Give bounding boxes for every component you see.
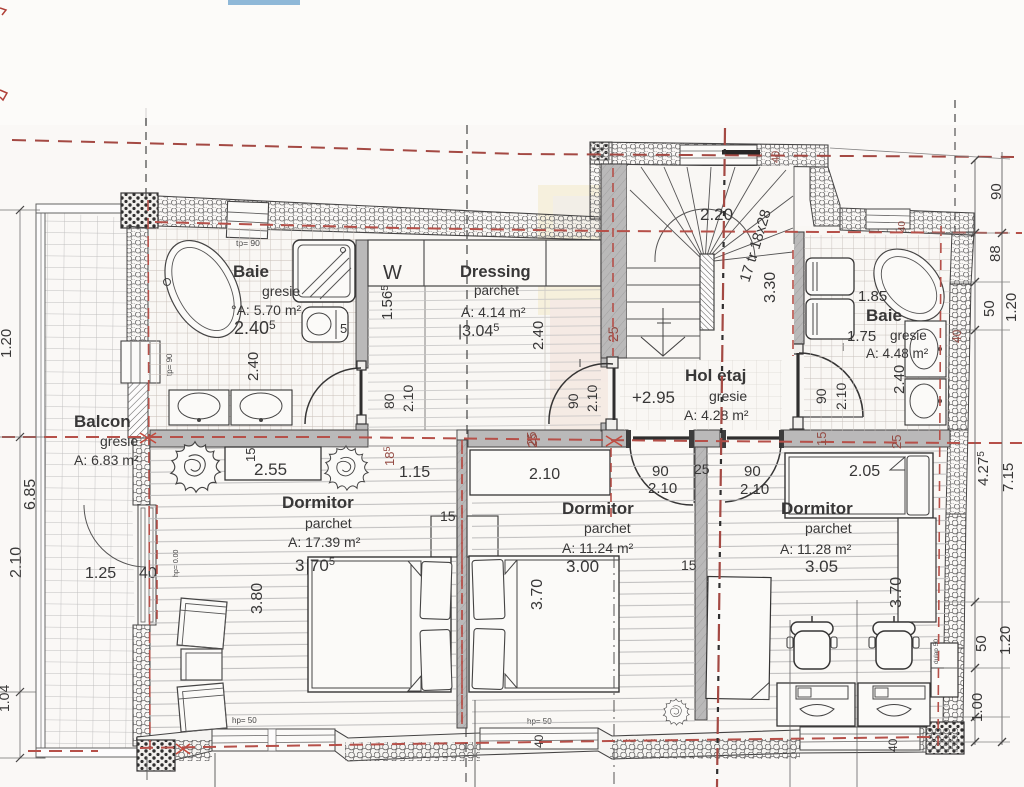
svg-text:A: 11.24 m²: A: 11.24 m² bbox=[562, 540, 634, 556]
svg-text:15: 15 bbox=[440, 508, 456, 524]
svg-text:2.10: 2.10 bbox=[400, 385, 416, 412]
svg-text:25: 25 bbox=[889, 435, 904, 449]
svg-text:°A: 5.70 m²: °A: 5.70 m² bbox=[231, 302, 302, 318]
svg-text:2.10: 2.10 bbox=[529, 466, 560, 483]
svg-text:Balcon: Balcon bbox=[74, 412, 131, 431]
svg-text:gresie: gresie bbox=[100, 433, 138, 449]
svg-text:gresie: gresie bbox=[890, 328, 927, 343]
svg-text:A: 11.28 m²: A: 11.28 m² bbox=[780, 541, 852, 557]
svg-text:90: 90 bbox=[652, 463, 669, 480]
svg-text:50: 50 bbox=[973, 635, 990, 652]
svg-text:Baie: Baie bbox=[866, 306, 902, 325]
svg-text:parchet: parchet bbox=[305, 515, 352, 531]
svg-text:parchet: parchet bbox=[805, 520, 852, 536]
svg-text:W: W bbox=[383, 262, 402, 284]
svg-text:5: 5 bbox=[340, 321, 347, 336]
svg-text:40: 40 bbox=[770, 151, 782, 163]
svg-text:1.25: 1.25 bbox=[85, 565, 116, 582]
svg-text:1.20: 1.20 bbox=[1003, 293, 1020, 322]
svg-text:3.05: 3.05 bbox=[805, 557, 838, 576]
svg-text:2.10: 2.10 bbox=[833, 383, 849, 410]
svg-text:2.10: 2.10 bbox=[584, 385, 600, 412]
svg-text:7.15: 7.15 bbox=[1000, 463, 1017, 492]
svg-text:Dormitor: Dormitor bbox=[282, 493, 354, 512]
svg-text:6.85: 6.85 bbox=[22, 479, 39, 510]
svg-text:3.30: 3.30 bbox=[762, 272, 779, 303]
svg-text:1.85: 1.85 bbox=[858, 288, 887, 305]
svg-text:15: 15 bbox=[814, 432, 829, 446]
svg-text:Baie: Baie bbox=[233, 262, 269, 281]
svg-text:2.55: 2.55 bbox=[254, 460, 287, 479]
svg-text:1.20: 1.20 bbox=[0, 329, 15, 358]
svg-text:1.04: 1.04 bbox=[0, 685, 12, 712]
svg-text:25: 25 bbox=[694, 461, 710, 477]
svg-text:1.75: 1.75 bbox=[847, 328, 876, 345]
svg-text:Dressing: Dressing bbox=[460, 263, 531, 281]
svg-text:2.10: 2.10 bbox=[8, 547, 25, 578]
svg-text:1.00: 1.00 bbox=[969, 693, 986, 722]
svg-text:40: 40 bbox=[897, 220, 908, 232]
svg-text:90: 90 bbox=[813, 388, 829, 404]
svg-text:2.20: 2.20 bbox=[700, 205, 733, 224]
svg-text:50: 50 bbox=[981, 300, 998, 317]
svg-text:2.40: 2.40 bbox=[245, 352, 262, 381]
svg-text:gresie: gresie bbox=[262, 283, 300, 299]
svg-text:3.70: 3.70 bbox=[529, 579, 546, 610]
svg-text:3.80: 3.80 bbox=[249, 583, 266, 614]
svg-text:40: 40 bbox=[886, 738, 900, 752]
svg-text:90: 90 bbox=[565, 393, 581, 409]
svg-text:Hol etaj: Hol etaj bbox=[685, 366, 746, 385]
svg-text:hp= 0.00: hp= 0.00 bbox=[173, 549, 180, 577]
svg-text:40: 40 bbox=[950, 329, 964, 343]
svg-text:A: 4.28 m²: A: 4.28 m² bbox=[684, 407, 749, 423]
svg-text:80: 80 bbox=[381, 393, 397, 409]
svg-text:A: 4.48 m²: A: 4.48 m² bbox=[866, 346, 929, 361]
svg-text:25: 25 bbox=[524, 432, 539, 446]
svg-text:A: 4.14 m²: A: 4.14 m² bbox=[461, 304, 526, 320]
svg-text:2.40: 2.40 bbox=[891, 365, 908, 394]
svg-text:1.20: 1.20 bbox=[997, 626, 1014, 655]
svg-text:2.05: 2.05 bbox=[849, 463, 880, 480]
svg-text:90: 90 bbox=[988, 183, 1005, 200]
svg-text:1.15: 1.15 bbox=[399, 464, 430, 481]
svg-text:+2.95: +2.95 bbox=[632, 388, 675, 407]
svg-text:2.40: 2.40 bbox=[530, 321, 547, 350]
svg-text:parchet: parchet bbox=[474, 283, 519, 298]
svg-text:2.10: 2.10 bbox=[648, 480, 677, 497]
svg-text:15: 15 bbox=[681, 557, 697, 573]
svg-text:parchet: parchet bbox=[584, 520, 631, 536]
svg-text:Dormitor: Dormitor bbox=[781, 499, 853, 518]
svg-text:A: 6.83 m²: A: 6.83 m² bbox=[74, 452, 139, 468]
svg-text:88: 88 bbox=[987, 245, 1004, 262]
svg-text:A: 17.39 m²: A: 17.39 m² bbox=[288, 534, 361, 550]
svg-text:2.10: 2.10 bbox=[740, 481, 769, 498]
svg-text:gresie: gresie bbox=[709, 388, 747, 404]
svg-text:3.00: 3.00 bbox=[566, 557, 599, 576]
svg-text:3.70: 3.70 bbox=[888, 577, 905, 608]
svg-text:|3.045: |3.045 bbox=[458, 322, 499, 340]
svg-text:Dormitor: Dormitor bbox=[562, 499, 634, 518]
svg-text:90: 90 bbox=[744, 463, 761, 480]
